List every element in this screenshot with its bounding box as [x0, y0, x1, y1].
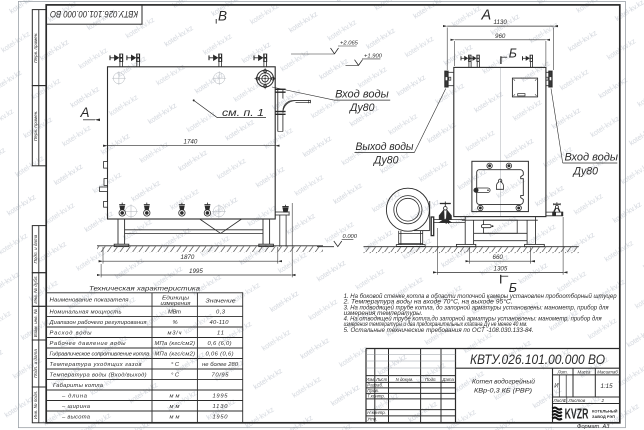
- svg-text:1995: 1995: [189, 268, 203, 275]
- svg-text:960: 960: [495, 33, 506, 40]
- svg-text:Пров.: Пров.: [367, 388, 379, 393]
- svg-text:1: 1: [564, 398, 567, 403]
- svg-text:Листов: Листов: [568, 398, 586, 403]
- svg-text:1950: 1950: [213, 414, 229, 420]
- svg-text:Гидравлическое сопротивление к: Гидравлическое сопротивление котла: [50, 351, 151, 357]
- svg-text:м3/ч: м3/ч: [168, 330, 182, 336]
- svg-text:Вход воды: Вход воды: [335, 89, 389, 101]
- svg-text:МПа (кгс/см2): МПа (кгс/см2): [155, 341, 196, 347]
- svg-text:А: А: [80, 105, 90, 120]
- svg-text:Б: Б: [509, 47, 517, 61]
- svg-text:+2.065: +2.065: [340, 41, 359, 47]
- svg-text:Ду80: Ду80: [348, 102, 375, 114]
- svg-text:КВТУ.026.101.00.000 ВО: КВТУ.026.101.00.000 ВО: [50, 9, 138, 19]
- svg-text:В: В: [218, 9, 227, 24]
- svg-text:5. Остальные технические треб: 5. Остальные технические требования по О…: [344, 328, 534, 334]
- svg-text:Котел водогрейный: Котел водогрейный: [472, 378, 535, 386]
- svg-text:11: 11: [217, 330, 224, 336]
- svg-text:А: А: [481, 8, 492, 24]
- svg-text:Вход воды: Вход воды: [565, 152, 619, 164]
- svg-text:Ду80: Ду80: [572, 165, 599, 177]
- svg-text:1:15: 1:15: [601, 383, 614, 390]
- svg-text:0,3: 0,3: [216, 310, 226, 316]
- svg-text:Утв.: Утв.: [367, 417, 377, 422]
- svg-text:Температура воды (Вход/выход): Температура воды (Вход/выход): [50, 372, 147, 378]
- svg-text:Техническая характеристика: Техническая характеристика: [89, 286, 201, 293]
- svg-text:Взам. инв. №: Взам. инв. №: [33, 309, 38, 337]
- svg-text:Подп. и дата: Подп. и дата: [33, 349, 38, 378]
- svg-text:Лист: Лист: [375, 377, 388, 382]
- svg-text:Диапазон рабочего регулировани: Диапазон рабочего регулирования: [49, 320, 147, 326]
- svg-text:Подп. и дата: Подп. и дата: [33, 234, 38, 263]
- svg-text:1130: 1130: [213, 404, 229, 410]
- svg-text:Инв. № подл.: Инв. № подл.: [33, 391, 38, 420]
- svg-text:660: 660: [493, 254, 504, 261]
- svg-text:не более 280: не более 280: [202, 362, 239, 368]
- svg-text:Лит.: Лит.: [557, 369, 568, 374]
- svg-text:KVZR: KVZR: [565, 406, 589, 422]
- svg-text:см. п. 1: см. п. 1: [222, 107, 264, 119]
- svg-text:КОТЕЛЬНЫЙ: КОТЕЛЬНЫЙ: [592, 408, 618, 413]
- svg-text:– ширина: – ширина: [61, 404, 91, 410]
- svg-text:Н.контр.: Н.контр.: [367, 410, 386, 415]
- svg-text:Масса: Масса: [578, 369, 592, 374]
- svg-text:Габариты котла: Габариты котла: [53, 383, 104, 389]
- svg-text:– высота: – высота: [61, 414, 91, 420]
- svg-text:Номинальная мощность: Номинальная мощность: [50, 310, 122, 316]
- svg-text:А3: А3: [602, 424, 611, 430]
- svg-text:0.000: 0.000: [343, 234, 358, 240]
- svg-text:Масштаб: Масштаб: [597, 369, 618, 374]
- svg-text:1130: 1130: [494, 19, 508, 26]
- svg-text:Рабочее давление воды: Рабочее давление воды: [50, 341, 127, 347]
- svg-text:Подп.: Подп.: [425, 377, 437, 382]
- svg-text:1740: 1740: [184, 139, 198, 146]
- svg-text:2: 2: [601, 398, 605, 403]
- svg-text:МВт: МВт: [168, 310, 181, 316]
- svg-text:ЗАВОД РЭП: ЗАВОД РЭП: [592, 414, 615, 419]
- svg-text:70/95: 70/95: [212, 372, 230, 378]
- svg-text:Перв. примен.: Перв. примен.: [33, 110, 38, 141]
- svg-text:Наименование показателя: Наименование показателя: [50, 298, 129, 304]
- svg-text:Б: Б: [509, 281, 517, 295]
- svg-text:КВр-0,3 КБ (РВР): КВр-0,3 КБ (РВР): [474, 388, 532, 395]
- svg-text:– длина: – длина: [61, 393, 88, 399]
- svg-text:Значение: Значение: [206, 299, 237, 305]
- svg-text:измерения: измерения: [161, 301, 191, 307]
- svg-text:Разраб.: Разраб.: [367, 383, 383, 388]
- svg-text:40-110: 40-110: [210, 320, 230, 326]
- svg-text:Формат: Формат: [577, 424, 600, 430]
- svg-text:+1.900: +1.900: [364, 54, 383, 60]
- svg-text:Расход воды: Расход воды: [50, 330, 93, 336]
- svg-text:1870: 1870: [181, 254, 195, 261]
- svg-text:Температура уходящих газов: Температура уходящих газов: [50, 362, 142, 368]
- svg-text:°С: °С: [171, 372, 180, 378]
- svg-text:N докум.: N докум.: [396, 377, 414, 382]
- svg-text:Изм.: Изм.: [366, 377, 375, 382]
- svg-text:°С: °С: [171, 362, 180, 368]
- svg-text:МПа (кгс/см2): МПа (кгс/см2): [155, 351, 196, 357]
- svg-text:Перв. примен.: Перв. примен.: [33, 32, 38, 63]
- svg-text:Инв. № дубл.: Инв. № дубл.: [33, 275, 38, 303]
- svg-text:0,06 (0,6): 0,06 (0,6): [206, 351, 234, 357]
- svg-text:1995: 1995: [213, 393, 229, 399]
- svg-text:%: %: [173, 320, 178, 326]
- svg-text:1305: 1305: [494, 265, 508, 272]
- svg-text:Ду80: Ду80: [372, 154, 399, 166]
- svg-text:Т.контр.: Т.контр.: [367, 394, 385, 399]
- svg-text:Дата: Дата: [441, 377, 454, 382]
- svg-text:Выход воды: Выход воды: [356, 141, 414, 153]
- svg-text:И: И: [554, 384, 559, 390]
- svg-text:0,6 (6,0): 0,6 (6,0): [208, 341, 232, 347]
- svg-text:КВТУ.026.101.00.000 ВО: КВТУ.026.101.00.000 ВО: [470, 352, 605, 367]
